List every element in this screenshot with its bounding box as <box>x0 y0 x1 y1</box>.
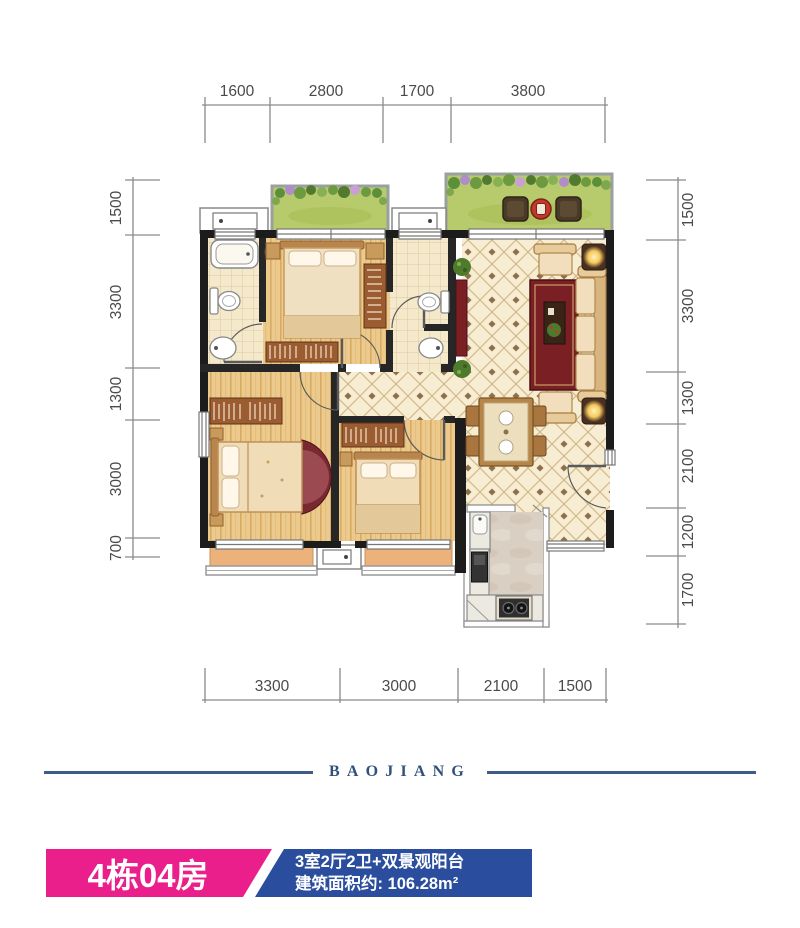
toilet <box>418 291 449 313</box>
dim-top-1: 1600 <box>220 83 255 100</box>
bed <box>211 438 331 516</box>
dim-right-5: 1200 <box>680 514 697 549</box>
unit-label-bar: 4栋04房 3室2厅2卫+双景观阳台 建筑面积约: 106.28m² <box>46 849 532 897</box>
floorplan-page: 1600 2800 1700 3800 1500 3300 1300 3000 … <box>0 0 800 928</box>
nightstand <box>366 243 384 259</box>
washbasin <box>210 337 236 359</box>
bathtub <box>211 240 258 268</box>
bed <box>280 241 364 338</box>
wardrobe <box>210 398 282 424</box>
refrigerator-door <box>474 555 485 565</box>
master-window <box>199 412 209 457</box>
wardrobe <box>266 342 338 362</box>
brand-divider: BAOJIANG <box>44 763 756 781</box>
side-closet <box>364 264 386 328</box>
dimensions-right: 1500 3300 1300 2100 1200 1700 <box>646 177 697 628</box>
dim-bottom-3: 2100 <box>484 678 519 695</box>
unit-layout-text: 3室2厅2卫+双景观阳台 <box>295 851 532 873</box>
bathroom1-window <box>215 229 255 239</box>
nightstand <box>266 243 280 259</box>
dim-top-3: 1700 <box>400 83 435 100</box>
stove <box>496 596 532 620</box>
bathroom2-window <box>399 229 441 239</box>
nightstand <box>340 452 352 466</box>
lamp-table-bottom <box>582 398 606 424</box>
washbasin <box>419 338 443 358</box>
dining-table <box>479 398 533 466</box>
dim-right-3: 1300 <box>680 380 697 415</box>
plant <box>453 360 471 378</box>
plant <box>453 258 471 276</box>
dim-left-2: 3300 <box>108 284 125 319</box>
sofa <box>576 266 606 402</box>
dim-bottom-2: 3000 <box>382 678 417 695</box>
dim-top-4: 3800 <box>511 83 546 100</box>
hallway-floor <box>335 372 466 420</box>
dim-right-6: 1700 <box>680 572 697 607</box>
dim-bottom-4: 1500 <box>558 678 593 695</box>
lamp-table-top <box>582 244 606 270</box>
master-balcony-door <box>216 540 303 549</box>
unit-number-badge: 4栋04房 <box>46 849 272 897</box>
balcony-chair-right <box>556 197 581 221</box>
ac-platform-bottom <box>317 545 361 569</box>
bedroom3-balcony-door <box>367 540 450 549</box>
floor-plan: 1600 2800 1700 3800 1500 3300 1300 3000 … <box>0 0 800 928</box>
dim-top-2: 2800 <box>309 83 344 100</box>
entry-side-window <box>605 450 615 465</box>
dimensions-bottom: 3300 3000 2100 1500 <box>202 668 608 703</box>
armchair-top <box>534 244 576 275</box>
dim-left-1: 1500 <box>108 190 125 225</box>
dim-right-2: 3300 <box>680 288 697 323</box>
dim-left-4: 3000 <box>108 461 125 496</box>
unit-info-badge: 3室2厅2卫+双景观阳台 建筑面积约: 106.28m² <box>255 849 532 897</box>
divider-line-right <box>487 771 756 774</box>
coffee-table <box>544 302 565 344</box>
divider-line-left <box>44 771 313 774</box>
bedroom2-balcony-door <box>277 229 385 239</box>
dim-left-3: 1300 <box>108 376 125 411</box>
kitchen <box>464 505 549 627</box>
dim-right-1: 1500 <box>680 192 697 227</box>
dimensions-top: 1600 2800 1700 3800 <box>202 83 608 143</box>
living-balcony-door <box>469 229 604 239</box>
dim-left-5: 700 <box>108 535 125 561</box>
dining-window <box>547 541 604 551</box>
dim-bottom-1: 3300 <box>255 678 290 695</box>
wardrobe <box>342 423 404 447</box>
brand-name: BAOJIANG <box>329 763 471 781</box>
bed <box>354 452 422 533</box>
living-balcony <box>446 174 612 234</box>
balcony-table <box>531 199 551 219</box>
unit-area-text: 建筑面积约: 106.28m² <box>295 873 532 895</box>
dim-right-4: 2100 <box>680 448 697 483</box>
bedroom-balcony <box>272 185 388 234</box>
balcony-chair-left <box>503 197 528 221</box>
dimensions-left: 1500 3300 1300 3000 700 <box>108 177 160 561</box>
kitchen-sink <box>470 512 490 552</box>
